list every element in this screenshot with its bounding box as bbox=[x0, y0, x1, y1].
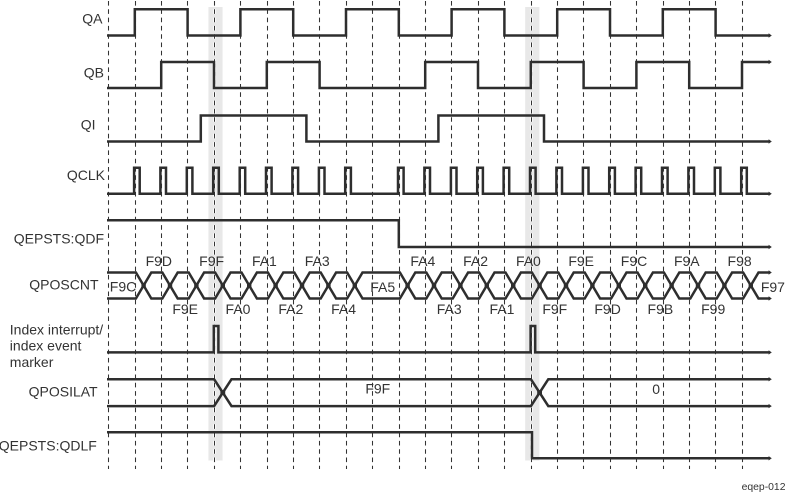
svg-text:FA3: FA3 bbox=[305, 253, 330, 269]
svg-text:marker: marker bbox=[10, 354, 54, 370]
svg-text:QPOSILAT: QPOSILAT bbox=[29, 384, 98, 400]
svg-text:F9F: F9F bbox=[365, 381, 390, 397]
svg-text:F9C: F9C bbox=[621, 253, 647, 269]
svg-text:FA2: FA2 bbox=[463, 253, 488, 269]
svg-text:QEPSTS:QDF: QEPSTS:QDF bbox=[14, 230, 104, 246]
svg-text:FA1: FA1 bbox=[252, 253, 277, 269]
svg-text:eqep-012: eqep-012 bbox=[742, 482, 786, 492]
svg-text:F9F: F9F bbox=[542, 301, 567, 317]
svg-text:F97: F97 bbox=[761, 279, 785, 295]
svg-text:FA4: FA4 bbox=[331, 301, 356, 317]
svg-text:index event: index event bbox=[10, 338, 82, 354]
svg-text:F9C: F9C bbox=[110, 279, 136, 295]
svg-text:FA0: FA0 bbox=[226, 301, 251, 317]
svg-text:F9E: F9E bbox=[568, 253, 594, 269]
svg-text:F9E: F9E bbox=[172, 301, 198, 317]
svg-text:F9F: F9F bbox=[199, 253, 224, 269]
svg-text:F99: F99 bbox=[701, 301, 725, 317]
svg-text:QEPSTS:QDLF: QEPSTS:QDLF bbox=[0, 437, 97, 453]
svg-text:F98: F98 bbox=[728, 253, 752, 269]
svg-text:QA: QA bbox=[82, 11, 103, 27]
svg-text:F9B: F9B bbox=[648, 301, 674, 317]
svg-text:F9D: F9D bbox=[594, 301, 620, 317]
svg-text:0: 0 bbox=[652, 381, 660, 397]
svg-text:FA0: FA0 bbox=[516, 253, 541, 269]
svg-text:QCLK: QCLK bbox=[67, 167, 106, 183]
svg-text:Index interrupt/: Index interrupt/ bbox=[10, 321, 103, 337]
svg-text:FA3: FA3 bbox=[437, 301, 462, 317]
svg-text:FA1: FA1 bbox=[490, 301, 515, 317]
svg-text:QI: QI bbox=[81, 117, 96, 133]
svg-text:F9D: F9D bbox=[146, 253, 172, 269]
svg-text:FA5: FA5 bbox=[370, 279, 395, 295]
svg-text:F9A: F9A bbox=[674, 253, 700, 269]
svg-text:QB: QB bbox=[84, 65, 104, 81]
svg-text:FA2: FA2 bbox=[278, 301, 303, 317]
svg-text:QPOSCNT: QPOSCNT bbox=[29, 277, 99, 293]
svg-text:FA4: FA4 bbox=[410, 253, 435, 269]
